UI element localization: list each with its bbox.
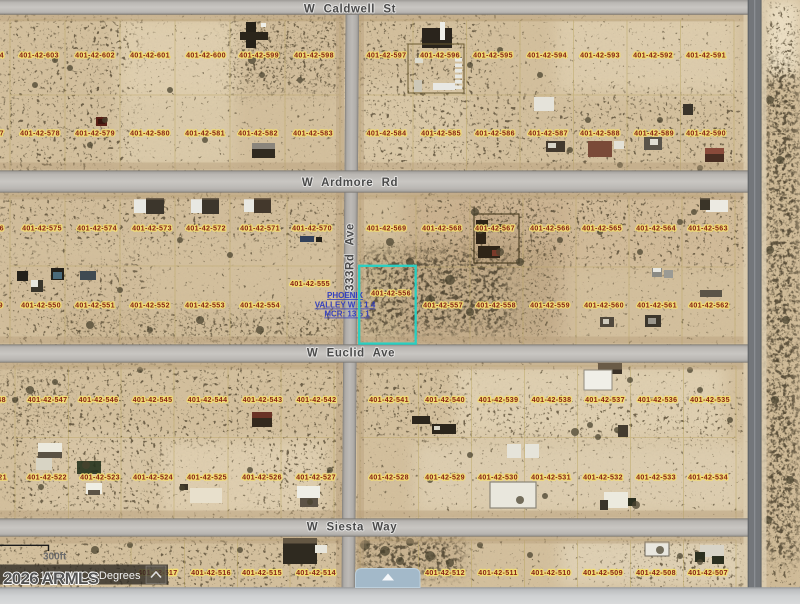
svg-text:401-42-514: 401-42-514 [296,569,336,577]
svg-text:W Caldwell St: W Caldwell St [304,4,396,16]
svg-text:401-42-592: 401-42-592 [633,52,673,60]
svg-text:401-42-561: 401-42-561 [637,302,677,310]
svg-text:401-42-594: 401-42-594 [527,52,567,60]
svg-text:401-42-527: 401-42-527 [296,474,336,482]
svg-text:401-42-560: 401-42-560 [584,302,624,310]
svg-text:401-42-591: 401-42-591 [686,52,726,60]
svg-text:MCR: 13 5 1: MCR: 13 5 1 [324,310,370,319]
svg-text:401-42-577: 401-42-577 [0,130,4,138]
svg-text:401-42-587: 401-42-587 [528,130,568,138]
svg-text:401-42-530: 401-42-530 [478,474,518,482]
svg-text:17: 17 [169,569,178,577]
svg-text:401-42-595: 401-42-595 [473,52,513,60]
svg-text:401-42-523: 401-42-523 [80,474,120,482]
svg-text:W Ardmore Rd: W Ardmore Rd [302,177,398,189]
svg-text:401-42-551: 401-42-551 [75,302,115,310]
svg-text:401-42-604: 401-42-604 [0,52,4,60]
svg-text:401-42-548: 401-42-548 [0,396,6,404]
svg-text:401-42-510: 401-42-510 [531,569,571,577]
svg-text:401-42-572: 401-42-572 [186,225,226,233]
svg-text:401-42-516: 401-42-516 [191,569,231,577]
svg-text:401-42-582: 401-42-582 [238,130,278,138]
svg-text:401-42-580: 401-42-580 [130,130,170,138]
svg-text:401-42-525: 401-42-525 [187,474,227,482]
svg-text:401-42-529: 401-42-529 [425,474,465,482]
svg-text:401-42-585: 401-42-585 [421,130,461,138]
svg-text:401-42-509: 401-42-509 [583,569,623,577]
svg-text:401-42-553: 401-42-553 [185,302,225,310]
svg-text:401-42-512: 401-42-512 [425,569,465,577]
svg-text:401-42-599: 401-42-599 [239,52,279,60]
svg-text:401-42-534: 401-42-534 [688,474,728,482]
svg-text:401-42-565: 401-42-565 [582,225,622,233]
svg-text:401-42-541: 401-42-541 [369,396,409,404]
svg-text:VALLEY W 3 1 4: VALLEY W 3 1 4 [315,301,376,310]
svg-text:401-42-601: 401-42-601 [130,52,170,60]
svg-text:401-42-545: 401-42-545 [133,396,173,404]
svg-text:401-42-579: 401-42-579 [75,130,115,138]
svg-text:401-42-550: 401-42-550 [21,302,61,310]
svg-text:401-42-556: 401-42-556 [371,290,411,298]
svg-text:401-42-539: 401-42-539 [479,396,519,404]
svg-text:401-42-549: 401-42-549 [0,302,3,310]
svg-text:401-42-571: 401-42-571 [240,225,280,233]
svg-text:300ft: 300ft [43,552,67,563]
svg-text:401-42-543: 401-42-543 [243,396,283,404]
svg-text:401-42-507: 401-42-507 [688,569,728,577]
svg-text:401-42-537: 401-42-537 [585,396,625,404]
svg-text:401-42-598: 401-42-598 [294,52,334,60]
svg-text:401-42-508: 401-42-508 [636,569,676,577]
svg-text:401-42-584: 401-42-584 [367,130,407,138]
svg-text:401-42-533: 401-42-533 [636,474,676,482]
svg-text:401-42-602: 401-42-602 [75,52,115,60]
svg-text:401-42-597: 401-42-597 [367,52,407,60]
svg-text:401-42-570: 401-42-570 [292,225,332,233]
svg-text:401-42-558: 401-42-558 [476,302,516,310]
svg-text:401-42-511: 401-42-511 [478,569,517,577]
svg-text:401-42-528: 401-42-528 [369,474,409,482]
svg-text:401-42-544: 401-42-544 [188,396,228,404]
svg-text:401-42-542: 401-42-542 [297,396,337,404]
svg-text:401-42-575: 401-42-575 [22,225,62,233]
svg-text:401-42-524: 401-42-524 [133,474,173,482]
svg-text:401-42-603: 401-42-603 [19,52,59,60]
svg-text:401-42-531: 401-42-531 [531,474,571,482]
svg-text:401-42-588: 401-42-588 [580,130,620,138]
svg-text:401-42-568: 401-42-568 [422,225,462,233]
svg-text:401-42-567: 401-42-567 [475,225,515,233]
svg-text:401-42-554: 401-42-554 [240,302,280,310]
svg-text:401-42-559: 401-42-559 [530,302,570,310]
svg-text:401-42-593: 401-42-593 [580,52,620,60]
svg-text:401-42-515: 401-42-515 [242,569,282,577]
svg-text:401-42-569: 401-42-569 [367,225,407,233]
svg-text:401-42-526: 401-42-526 [242,474,282,482]
svg-text:401-42-540: 401-42-540 [425,396,465,404]
svg-text:W Euclid Ave: W Euclid Ave [307,348,395,360]
svg-text:333Rd Ave: 333Rd Ave [345,223,357,291]
svg-text:2026 ARMLS: 2026 ARMLS [3,569,99,588]
svg-text:401-42-583: 401-42-583 [293,130,333,138]
svg-text:401-42-590: 401-42-590 [686,130,726,138]
svg-text:401-42-538: 401-42-538 [532,396,572,404]
svg-text:401-42-566: 401-42-566 [530,225,570,233]
svg-text:401-42-586: 401-42-586 [475,130,515,138]
svg-text:401-42-573: 401-42-573 [132,225,172,233]
svg-text:401-42-581: 401-42-581 [185,130,225,138]
svg-text:401-42-522: 401-42-522 [27,474,67,482]
svg-text:401-42-521: 401-42-521 [0,474,7,482]
svg-text:401-42-576: 401-42-576 [0,225,4,233]
svg-text:401-42-574: 401-42-574 [77,225,117,233]
svg-text:401-42-563: 401-42-563 [688,225,728,233]
svg-text:401-42-578: 401-42-578 [20,130,60,138]
svg-text:401-42-589: 401-42-589 [634,130,674,138]
svg-text:401-42-555: 401-42-555 [290,280,330,288]
svg-text:401-42-564: 401-42-564 [636,225,676,233]
svg-text:401-42-536: 401-42-536 [638,396,678,404]
svg-text:401-42-535: 401-42-535 [690,396,730,404]
svg-text:401-42-546: 401-42-546 [79,396,119,404]
svg-text:401-42-557: 401-42-557 [423,302,463,310]
svg-text:401-42-552: 401-42-552 [130,302,170,310]
svg-text:401-42-596: 401-42-596 [420,52,460,60]
svg-text:401-42-600: 401-42-600 [186,52,226,60]
svg-text:W Siesta Way: W Siesta Way [307,522,398,534]
svg-text:401-42-562: 401-42-562 [689,302,729,310]
svg-text:401-42-547: 401-42-547 [28,396,68,404]
svg-text:401-42-532: 401-42-532 [583,474,623,482]
